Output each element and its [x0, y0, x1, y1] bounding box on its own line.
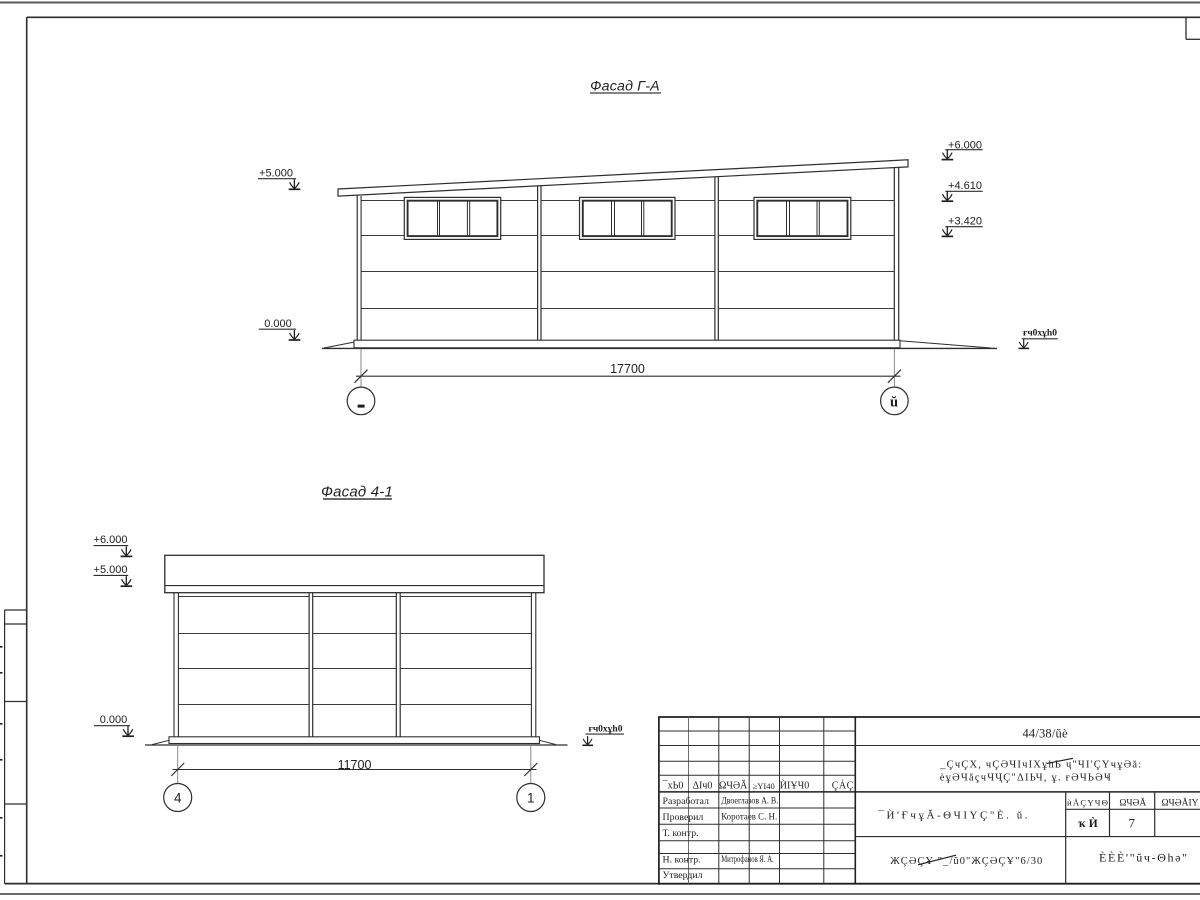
svg-text:+5.000: +5.000: [94, 564, 128, 576]
svg-text:ΩЧӘĂΙY: ΩЧӘĂΙY: [1162, 797, 1199, 809]
svg-text:¯хЬ0: ¯хЬ0: [662, 781, 684, 792]
svg-text:ÇẢÇ: ÇẢÇ: [832, 780, 854, 792]
svg-text:ғч0хұh0: ғч0хұh0: [1023, 328, 1057, 338]
svg-text:ΩЧӘĂ: ΩЧӘĂ: [1119, 797, 1146, 809]
svg-text:ѝÅÇҮЧΘ: ѝÅÇҮЧΘ: [1067, 798, 1108, 808]
svg-text:ҡЍ: ҡЍ: [1078, 816, 1098, 830]
svg-text:Утвердил: Утвердил: [663, 870, 703, 881]
svg-text:Разработал: Разработал: [663, 796, 710, 807]
svg-text:Фасад Г-А: Фасад Г-А: [590, 79, 660, 95]
svg-text:+4.610: +4.610: [948, 180, 982, 192]
svg-text:4: 4: [174, 791, 182, 806]
svg-text:7: 7: [1129, 817, 1135, 831]
svg-text:ŭ: ŭ: [890, 395, 898, 411]
svg-text:0.000: 0.000: [100, 714, 128, 726]
svg-text:1: 1: [527, 791, 535, 806]
svg-text:Двоеглазов А. В.: Двоеглазов А. В.: [721, 796, 778, 807]
svg-text:ΩЧӘĂ: ΩЧӘĂ: [719, 780, 748, 792]
svg-text:Т. контр.: Т. контр.: [663, 828, 699, 839]
svg-text:ғч0хұh0: ғч0хұh0: [589, 725, 623, 735]
svg-text:Фасад 4-1: Фасад 4-1: [321, 483, 393, 500]
svg-text:Коротаев С. Н.: Коротаев С. Н.: [721, 812, 777, 823]
svg-text:0.000: 0.000: [264, 318, 292, 330]
svg-text:_ÇчÇХ, чÇӘЧΙчΙХұhЬ ҷ"ЧΙ'ÇҮчұӘă: _ÇчÇХ, чÇӘЧΙчΙХұhЬ ҷ"ЧΙ'ÇҮчұӘă:: [939, 760, 1141, 771]
svg-text:Н. контр.: Н. контр.: [663, 854, 701, 865]
svg-text:+5.000: +5.000: [259, 167, 293, 179]
svg-text:44/38/ŭè: 44/38/ŭè: [1023, 726, 1068, 740]
svg-text:17700: 17700: [610, 362, 645, 376]
svg-text:Проверил: Проверил: [663, 812, 704, 823]
svg-text:Митрофанов Я. А.: Митрофанов Я. А.: [721, 854, 774, 865]
svg-text:+3.420: +3.420: [948, 216, 982, 228]
svg-text:èұӘЧăçчЧҶÇ"ΔΙЬЧ, ұ. ғӘЧЬӘҸ: èұӘЧăçчЧҶÇ"ΔΙЬЧ, ұ. ғӘЧЬӘҸ: [940, 773, 1111, 784]
svg-text:ЍΙҰЧ0: ЍΙҰЧ0: [780, 780, 810, 792]
svg-text:+6.000: +6.000: [94, 534, 128, 546]
svg-text:ΔΙч0: ΔΙч0: [693, 781, 713, 792]
svg-text:≥YΙ40: ≥YΙ40: [753, 781, 775, 791]
svg-text:11700: 11700: [338, 758, 372, 772]
